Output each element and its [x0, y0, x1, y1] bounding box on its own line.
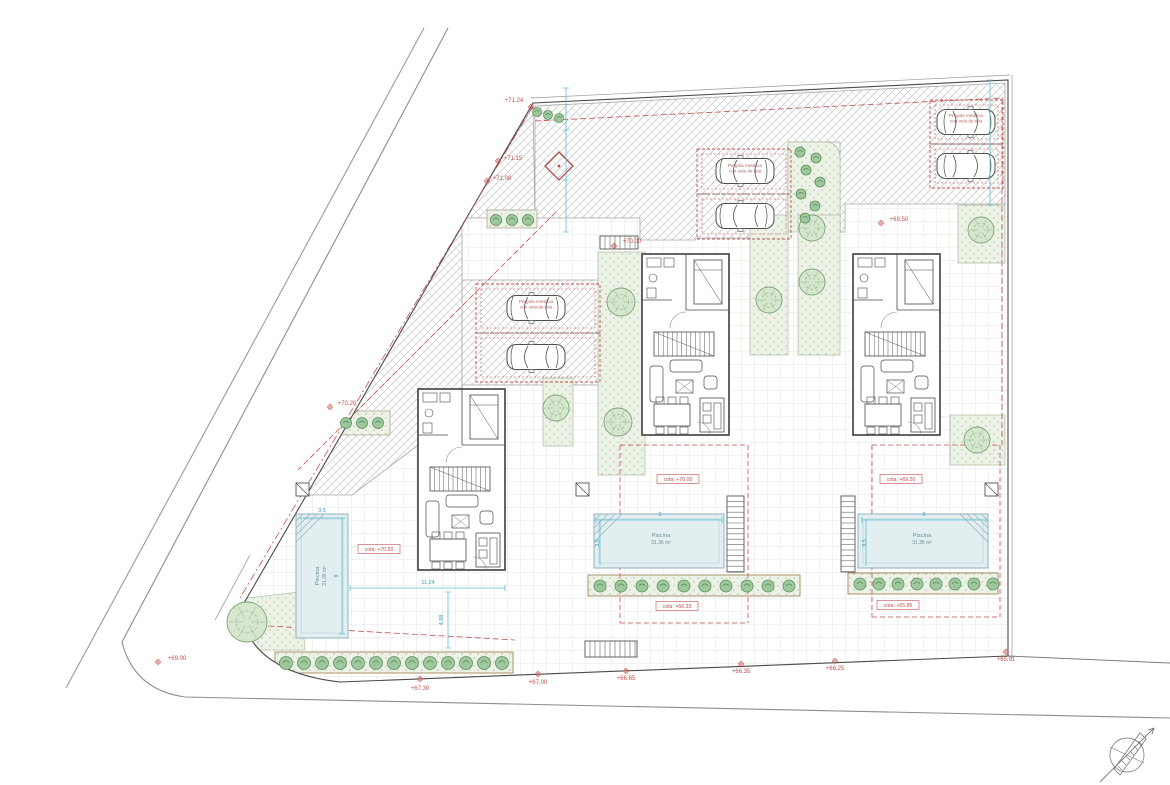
car-body: [507, 345, 565, 370]
bush-body: [388, 657, 401, 670]
pool-label-area: 31,36 m²: [322, 566, 328, 586]
pergola-label: Pérgola metálicacon vela de tela: [519, 299, 554, 309]
bush-body: [636, 580, 648, 592]
bush-icon: [949, 578, 961, 590]
cota-label: cota: +65.86: [884, 603, 913, 609]
dimension-label: 3,5: [318, 508, 326, 514]
bush-icon: [987, 578, 999, 590]
site-plan-canvas: +71.24+71.15+71.08+70.20+70.00+69.50+69.…: [0, 0, 1170, 785]
stairs-icon: [841, 496, 855, 572]
bush-body: [341, 418, 352, 429]
bush-icon: [968, 578, 980, 590]
bush-icon: [280, 657, 293, 670]
villa-floorplan: [418, 389, 505, 570]
stairs-icon: [727, 496, 744, 572]
bush-body: [699, 580, 711, 592]
marker-cross: [327, 404, 333, 410]
elevation-label: +69.00: [168, 656, 187, 662]
dimension-label: 3,5: [595, 539, 601, 547]
bush-body: [720, 580, 732, 592]
bush-body: [316, 657, 329, 670]
car-mirror: [968, 107, 973, 110]
cota-label: cota: +70.00: [664, 477, 693, 483]
car-mirror: [529, 342, 534, 345]
elevation-label: +71.15: [504, 156, 523, 162]
bush-icon: [370, 657, 383, 670]
car-mirror: [738, 156, 743, 159]
bush-icon: [491, 215, 502, 226]
elevation-label: +71.24: [505, 98, 524, 104]
level-marker-icon: [327, 404, 333, 410]
elevation-label: +67.30: [411, 686, 430, 692]
tree-icon: [604, 408, 632, 436]
bush-icon: [496, 657, 509, 670]
bush-icon: [442, 657, 455, 670]
bush-icon: [352, 657, 365, 670]
pergola-label-line: Pérgola metálica: [949, 113, 984, 118]
stairs-outline: [585, 641, 637, 657]
bush-body: [555, 114, 564, 123]
bush-body: [373, 418, 384, 429]
dimension-label: 9: [334, 574, 340, 577]
bush-icon: [555, 114, 564, 123]
bush-body: [334, 657, 347, 670]
bush-icon: [341, 418, 352, 429]
dimension-label: 4,98: [439, 615, 445, 626]
bush-icon: [523, 215, 534, 226]
bush-body: [406, 657, 419, 670]
bush-body: [815, 177, 825, 187]
car-mirror: [968, 135, 973, 138]
bush-body: [892, 578, 904, 590]
bush-icon: [478, 657, 491, 670]
cota-label: cota: +70.50: [365, 547, 394, 553]
tree-icon: [543, 395, 569, 421]
car-icon: [507, 342, 565, 373]
elevation-label: +66.65: [617, 676, 636, 682]
bush-body: [424, 657, 437, 670]
bush-body: [801, 165, 811, 175]
car-body: [937, 154, 995, 179]
bush-icon: [334, 657, 347, 670]
bush-icon: [594, 580, 606, 592]
bush-body: [491, 215, 502, 226]
marker-cross: [155, 659, 161, 665]
bush-body: [478, 657, 491, 670]
cota-label: cota: +69.50: [887, 477, 916, 483]
dimension-label: 9: [922, 512, 925, 518]
car-mirror: [529, 293, 534, 296]
bush-icon: [873, 578, 885, 590]
pool-label: Piscina31,36 m²: [912, 533, 932, 546]
tree-icon: [968, 217, 994, 243]
bush-icon: [796, 189, 806, 199]
bush-body: [657, 580, 669, 592]
car-mirror: [529, 370, 534, 373]
elevation-label: +71.08: [493, 176, 512, 182]
elevation-label: +70.00: [623, 239, 642, 245]
pergola-label-line: Pérgola metálica: [728, 163, 763, 168]
bush-body: [741, 580, 753, 592]
pergola-label-line: con vela de tela: [520, 304, 553, 309]
elevation-label: +66.25: [826, 666, 845, 672]
site-plan-drawing: +71.24+71.15+71.08+70.20+70.00+69.50+69.…: [0, 0, 1170, 785]
bush-body: [460, 657, 473, 670]
bush-icon: [657, 580, 669, 592]
tree-icon: [227, 602, 267, 642]
utility-box-icon: [576, 483, 589, 496]
elevation-label: +69.50: [890, 217, 909, 223]
utility-box-icon: [296, 483, 309, 496]
tree-icon: [799, 269, 825, 295]
bush-icon: [699, 580, 711, 592]
tree-icon: [607, 288, 635, 316]
bush-body: [523, 215, 534, 226]
cota-label: cota: +66.33: [663, 604, 692, 610]
bush-icon: [810, 201, 820, 211]
pool-label-area: 31,36 m²: [651, 540, 671, 546]
bush-body: [762, 580, 774, 592]
tree-icon: [756, 287, 782, 313]
elevation-label: +66.35: [732, 669, 751, 675]
bush-body: [800, 213, 810, 223]
pool-label-area: 31,36 m²: [912, 540, 932, 546]
bush-icon: [854, 578, 866, 590]
bush-icon: [388, 657, 401, 670]
bush-icon: [424, 657, 437, 670]
bush-icon: [460, 657, 473, 670]
pergola-label-line: con vela de tela: [950, 118, 983, 123]
bush-icon: [544, 111, 553, 120]
car-mirror: [738, 184, 743, 187]
car-mirror: [968, 179, 973, 182]
bush-icon: [507, 215, 518, 226]
bush-body: [678, 580, 690, 592]
car-mirror: [738, 229, 743, 232]
car-mirror: [968, 151, 973, 154]
villa-floorplan: [642, 254, 729, 435]
car-mirror: [529, 321, 534, 324]
road-frontage-line: [1008, 656, 1170, 663]
pool-label-name: Piscina: [913, 533, 932, 539]
bush-body: [442, 657, 455, 670]
bush-icon: [678, 580, 690, 592]
bush-body: [795, 147, 805, 157]
bush-body: [796, 189, 806, 199]
pool-label-name: Piscina: [315, 566, 321, 585]
elevation-label: +65.91: [997, 657, 1016, 663]
car-body: [716, 204, 774, 229]
bush-icon: [741, 580, 753, 592]
bush-body: [496, 657, 509, 670]
bush-icon: [930, 578, 942, 590]
bush-icon: [783, 580, 795, 592]
bush-icon: [406, 657, 419, 670]
pool-label: Piscina31,36 m²: [315, 566, 328, 586]
pool-label-name: Piscina: [652, 533, 671, 539]
bush-body: [370, 657, 383, 670]
bush-icon: [762, 580, 774, 592]
dimension-label: 9: [658, 512, 661, 518]
car-icon: [716, 201, 774, 232]
bush-body: [357, 418, 368, 429]
bush-body: [280, 657, 293, 670]
bush-icon: [795, 147, 805, 157]
elevation-label: +67.00: [529, 680, 548, 686]
bush-icon: [892, 578, 904, 590]
pergola-label: Pérgola metálicacon vela de tela: [949, 113, 984, 123]
bush-body: [854, 578, 866, 590]
pergola-label-line: Pérgola metálica: [519, 299, 554, 304]
compass-icon: [1100, 728, 1154, 782]
bush-body: [911, 578, 923, 590]
bush-icon: [811, 153, 821, 163]
bush-icon: [815, 177, 825, 187]
bush-body: [544, 111, 553, 120]
bush-body: [949, 578, 961, 590]
villa-floorplan: [853, 254, 940, 435]
bush-icon: [801, 165, 811, 175]
bush-body: [968, 578, 980, 590]
bush-body: [783, 580, 795, 592]
bush-icon: [533, 108, 542, 117]
stairs-icon: [585, 641, 637, 657]
bush-body: [352, 657, 365, 670]
dimension-label: 11,24: [421, 580, 434, 586]
bush-body: [615, 580, 627, 592]
bush-icon: [298, 657, 311, 670]
bush-body: [298, 657, 311, 670]
tree-icon: [964, 427, 990, 453]
bush-icon: [373, 418, 384, 429]
bush-icon: [636, 580, 648, 592]
utility-box-icon: [985, 483, 998, 496]
bush-icon: [615, 580, 627, 592]
car-icon: [937, 151, 995, 182]
bush-icon: [720, 580, 732, 592]
level-marker-icon: [155, 659, 161, 665]
car-mirror: [738, 201, 743, 204]
bush-body: [930, 578, 942, 590]
green-area: [598, 252, 645, 475]
bush-body: [533, 108, 542, 117]
pergola-label-line: con vela de tela: [729, 168, 762, 173]
bush-body: [507, 215, 518, 226]
bush-icon: [316, 657, 329, 670]
elevation-label: +70.20: [338, 401, 357, 407]
bush-icon: [911, 578, 923, 590]
bush-icon: [800, 213, 810, 223]
bush-icon: [357, 418, 368, 429]
green-area: [750, 215, 788, 355]
pool-label: Piscina31,36 m²: [651, 533, 671, 546]
bush-body: [811, 153, 821, 163]
bush-body: [810, 201, 820, 211]
pergola-label: Pérgola metálicacon vela de tela: [728, 163, 763, 173]
dimension-label: 3,5: [862, 539, 868, 547]
bush-body: [594, 580, 606, 592]
bush-body: [873, 578, 885, 590]
bush-body: [987, 578, 999, 590]
